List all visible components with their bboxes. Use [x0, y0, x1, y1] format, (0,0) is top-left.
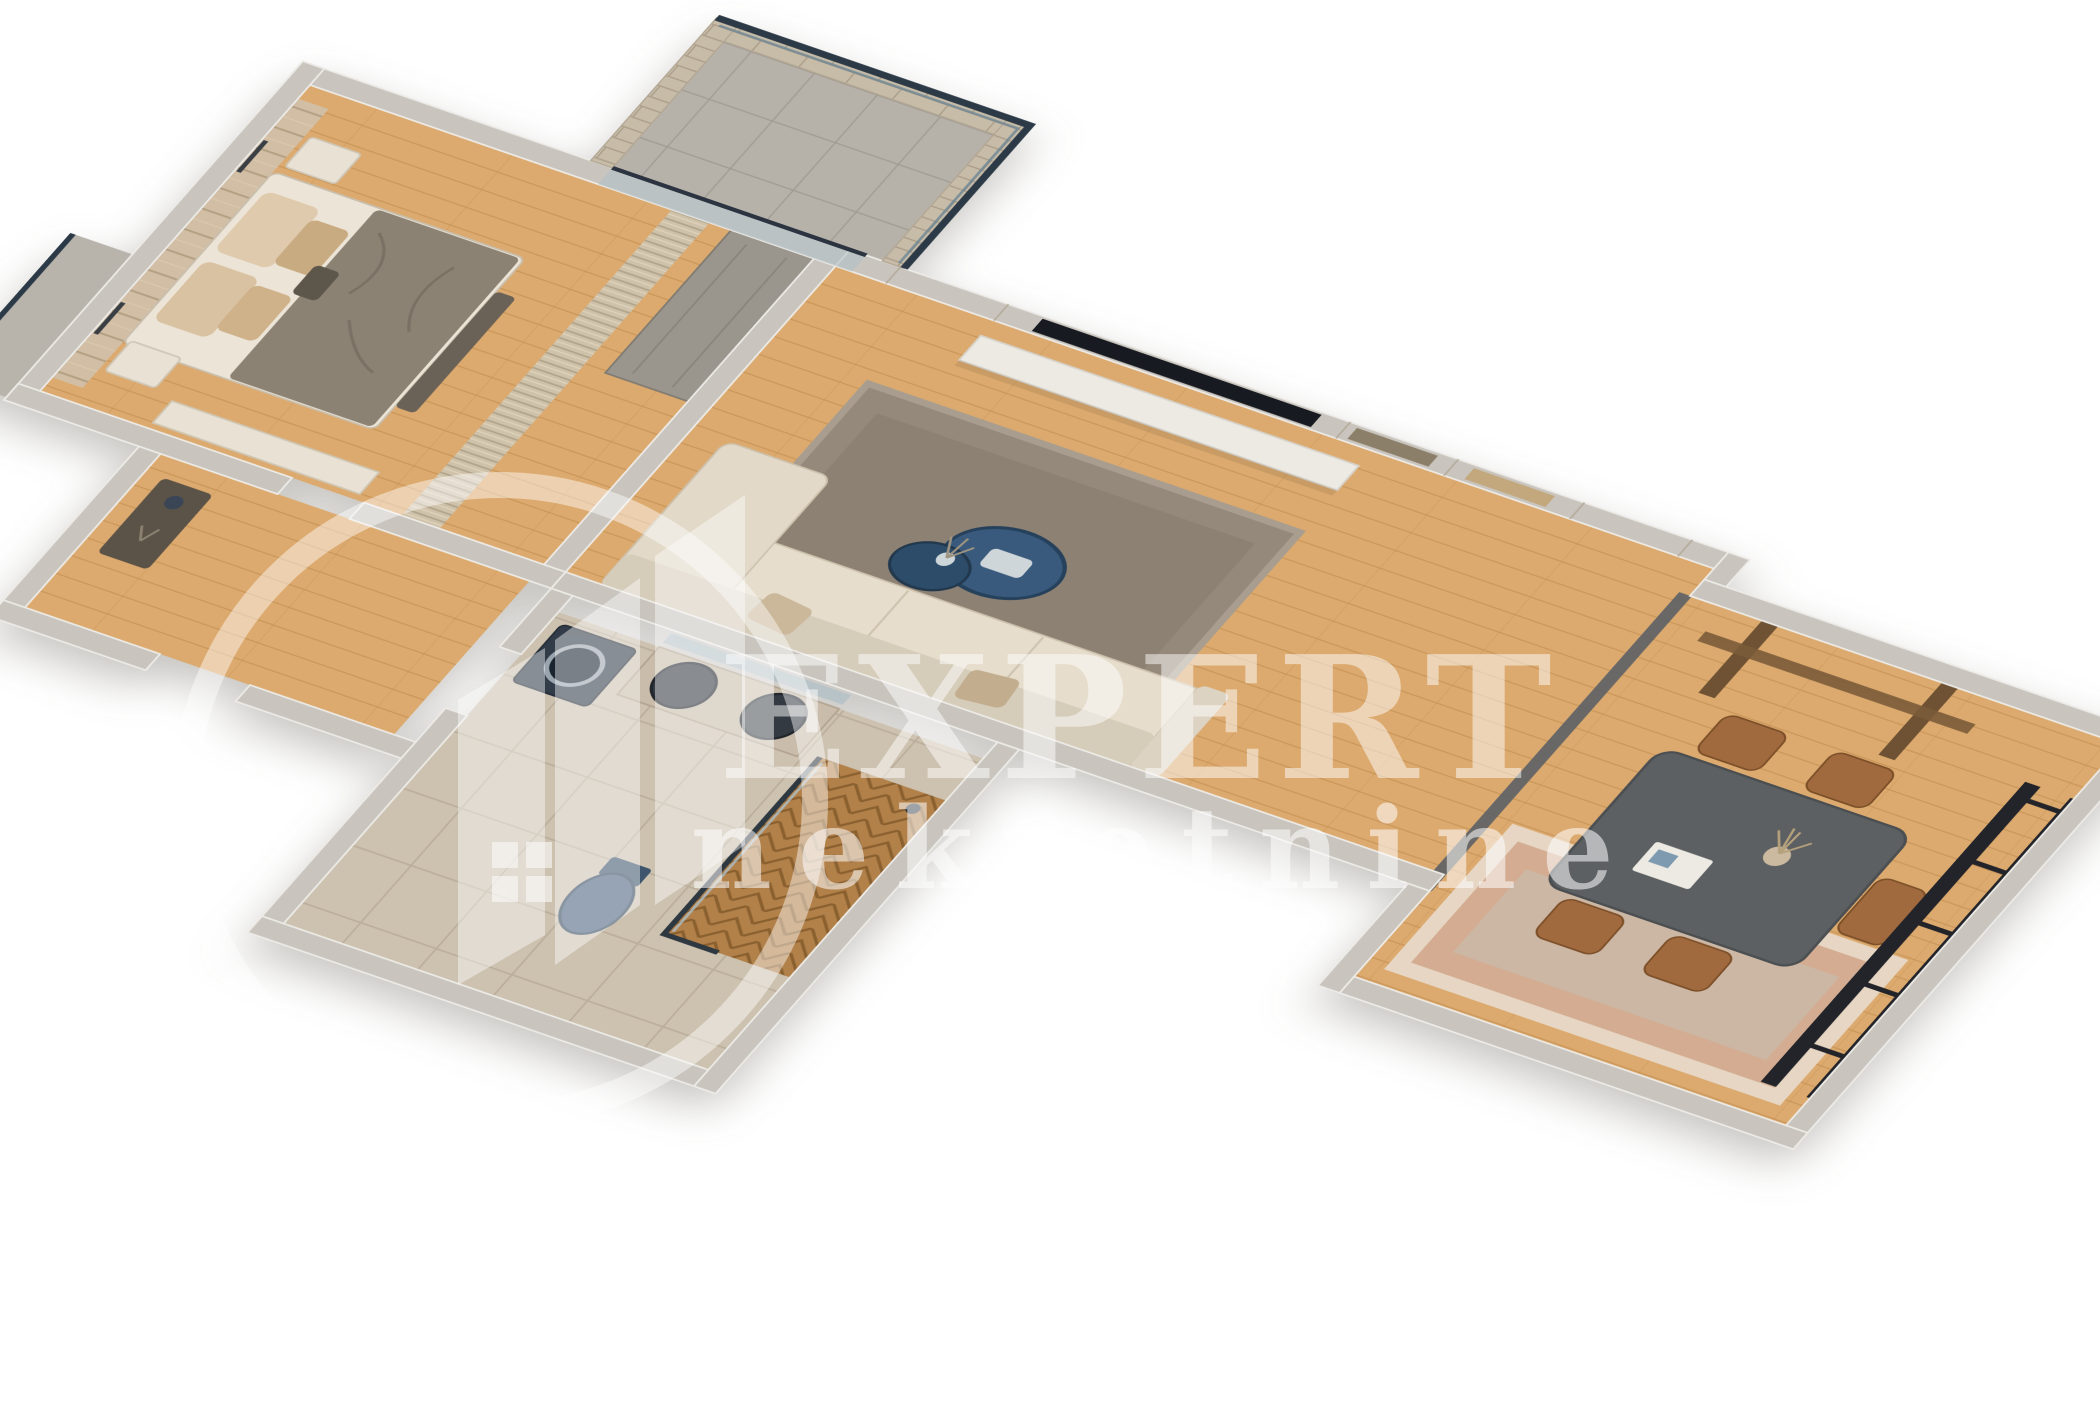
floor-plan-render: EXPERT nekretnine [0, 0, 2100, 1401]
watermark-tagline: nekretnine [691, 784, 1640, 915]
floor-plan-svg: EXPERT nekretnine [0, 0, 2100, 1401]
